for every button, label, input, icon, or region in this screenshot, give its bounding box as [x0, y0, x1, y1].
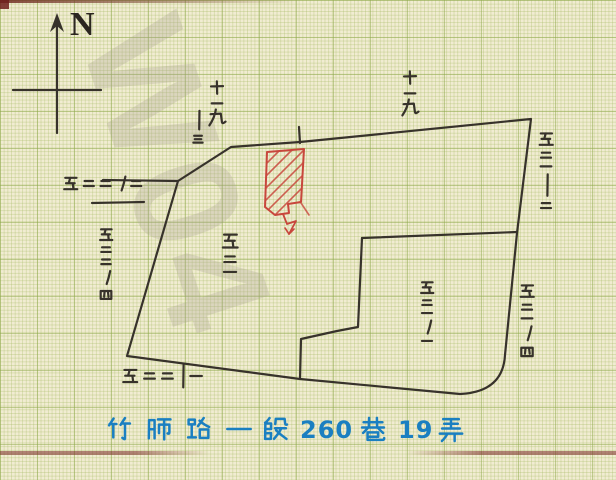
glyph-師 — [149, 419, 171, 439]
parcel-tail-arrow — [283, 214, 296, 234]
glyph-二 — [84, 181, 94, 186]
glyph-五 — [64, 178, 77, 189]
address-number: 19 — [398, 416, 433, 444]
parcel-hatch — [208, 150, 352, 222]
glyph-ノ — [122, 177, 126, 191]
glyph-五 — [540, 133, 553, 144]
glyph-二 — [522, 305, 532, 310]
street-address: 26019 — [109, 416, 462, 444]
interior-lines — [299, 127, 517, 379]
lot-label-lot-521-4 — [521, 285, 534, 356]
lot-label-lot-522-1 — [123, 365, 202, 388]
glyph-ノ — [428, 321, 432, 334]
address-number: 260 — [300, 416, 353, 444]
lot-label-lot-522-2 — [64, 177, 141, 191]
compass-label: N — [70, 6, 95, 44]
address-char — [362, 418, 384, 440]
subject-parcel-highlight — [208, 149, 352, 234]
glyph-二 — [101, 181, 111, 186]
lot-labels — [64, 71, 553, 387]
glyph-五 — [421, 282, 433, 293]
glyph-九 — [209, 109, 225, 125]
lot-label-lot-19-top-mid — [209, 81, 225, 125]
glyph-二 — [541, 203, 551, 208]
glyph-二 — [162, 373, 173, 378]
glyph-段 — [265, 418, 287, 439]
address-char — [188, 418, 209, 438]
glyph-五 — [223, 235, 238, 248]
address-char — [109, 418, 130, 439]
glyph-二 — [422, 300, 431, 305]
glyph-五 — [100, 229, 112, 240]
glyph-ノ — [528, 326, 532, 340]
glyph-巷 — [362, 418, 384, 440]
graph-paper-map: W04 — [0, 0, 616, 480]
glyph-二 — [224, 256, 235, 262]
glyph-十 — [211, 81, 223, 93]
boundary-lines — [92, 119, 531, 394]
glyph-ノ — [107, 271, 111, 284]
map-sketch: 26019 — [0, 0, 616, 480]
glyph-十 — [404, 71, 416, 83]
lot-label-lot-521-2 — [540, 133, 553, 208]
address-char — [440, 419, 462, 441]
glyph-五 — [123, 370, 137, 382]
glyph-三 — [193, 136, 202, 143]
lot-label-lot-slash-3 — [193, 111, 202, 143]
glyph-竹 — [109, 418, 130, 439]
lot-label-lot-521-1 — [421, 282, 433, 341]
glyph-四 — [101, 291, 112, 299]
glyph-二 — [541, 153, 551, 158]
glyph-四 — [521, 348, 532, 356]
lot-label-lot-521 — [223, 235, 238, 272]
lot-label-lot-19-top-right — [402, 71, 418, 115]
glyph-二 — [101, 260, 110, 265]
glyph-弄 — [440, 419, 462, 441]
glyph-二 — [131, 181, 141, 186]
address-char — [149, 419, 171, 439]
glyph-九 — [402, 99, 418, 115]
glyph-路 — [188, 418, 209, 438]
address-char — [265, 418, 287, 439]
lot-label-lot-522-4 — [100, 229, 112, 299]
glyph-二 — [144, 373, 155, 378]
glyph-二 — [101, 247, 110, 252]
glyph-五 — [521, 285, 534, 296]
